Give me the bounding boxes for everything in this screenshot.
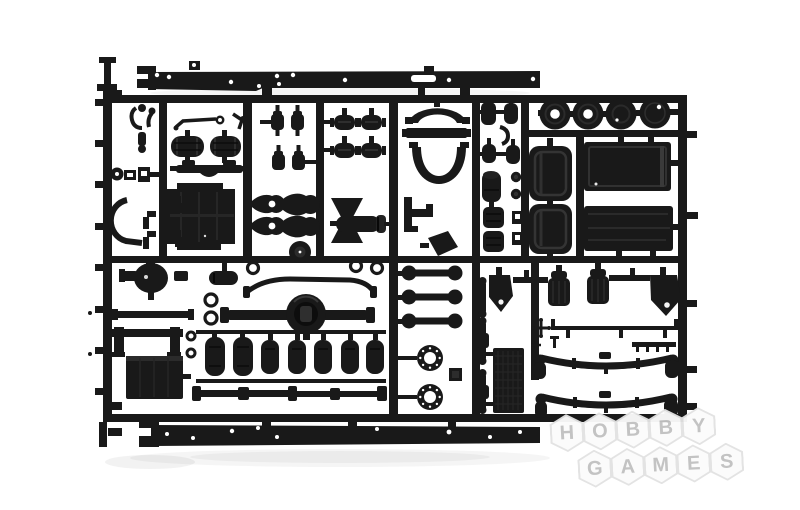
watermark-letter: S xyxy=(720,451,734,472)
product-photo: H O B B Y G A M E S xyxy=(0,0,800,510)
brake-drum-rings xyxy=(398,345,462,410)
small-muffler xyxy=(209,263,238,285)
watermark-hex: A xyxy=(610,447,646,487)
exhaust-muffler xyxy=(330,215,392,233)
watermark-hex: B xyxy=(648,408,684,448)
wheel-hubs xyxy=(324,108,386,158)
watermark-hex: G xyxy=(577,449,613,489)
air-tanks xyxy=(196,330,386,383)
fuel-tanks xyxy=(171,130,241,163)
wiper-rod xyxy=(174,114,247,131)
wheel-arch-crescent xyxy=(409,142,469,184)
drag-link xyxy=(111,167,161,182)
watermark-letter: E xyxy=(687,453,701,474)
hobby-games-watermark: H O B B Y G A M E S xyxy=(549,399,800,505)
watermark-letter: B xyxy=(625,419,640,440)
watermark-letter: B xyxy=(658,418,673,439)
front-axle-beam xyxy=(170,160,248,177)
watermark-letter: A xyxy=(620,457,635,478)
engine-mounts xyxy=(247,194,320,238)
cab-panels xyxy=(576,135,680,258)
front-axle-housing xyxy=(119,260,188,300)
mudflap-brackets xyxy=(489,267,681,316)
flywheel-disc xyxy=(289,241,311,263)
watermark-hex: M xyxy=(643,445,679,485)
battery-box xyxy=(126,356,191,399)
watermark-letter: Y xyxy=(692,416,706,437)
watermark-hex: E xyxy=(676,444,712,484)
cross-bar xyxy=(402,128,471,138)
radiator-core xyxy=(486,348,524,413)
cab-seats xyxy=(529,138,572,260)
watermark-hex: S xyxy=(709,442,745,482)
angled-plate xyxy=(420,231,458,256)
watermark-letter: H xyxy=(559,423,574,444)
drive-shafts xyxy=(192,386,387,401)
spring-links xyxy=(398,266,463,329)
support-frame xyxy=(111,327,195,357)
watermark-letter: M xyxy=(652,455,670,476)
steering-strip xyxy=(112,309,194,320)
mirror-arms xyxy=(132,104,156,153)
watermark-hex: Y xyxy=(681,406,717,446)
watermark-letter: G xyxy=(587,458,604,479)
h-bracket xyxy=(404,197,433,232)
watermark-hex: O xyxy=(582,411,618,451)
small-tank-column xyxy=(475,96,524,252)
brake-chambers xyxy=(260,105,317,170)
watermark-hex: H xyxy=(549,413,585,453)
linkage-parts xyxy=(531,318,678,352)
watermark-letter: O xyxy=(592,421,609,442)
leaf-springs xyxy=(531,352,683,418)
watermark-hex: B xyxy=(615,410,651,450)
